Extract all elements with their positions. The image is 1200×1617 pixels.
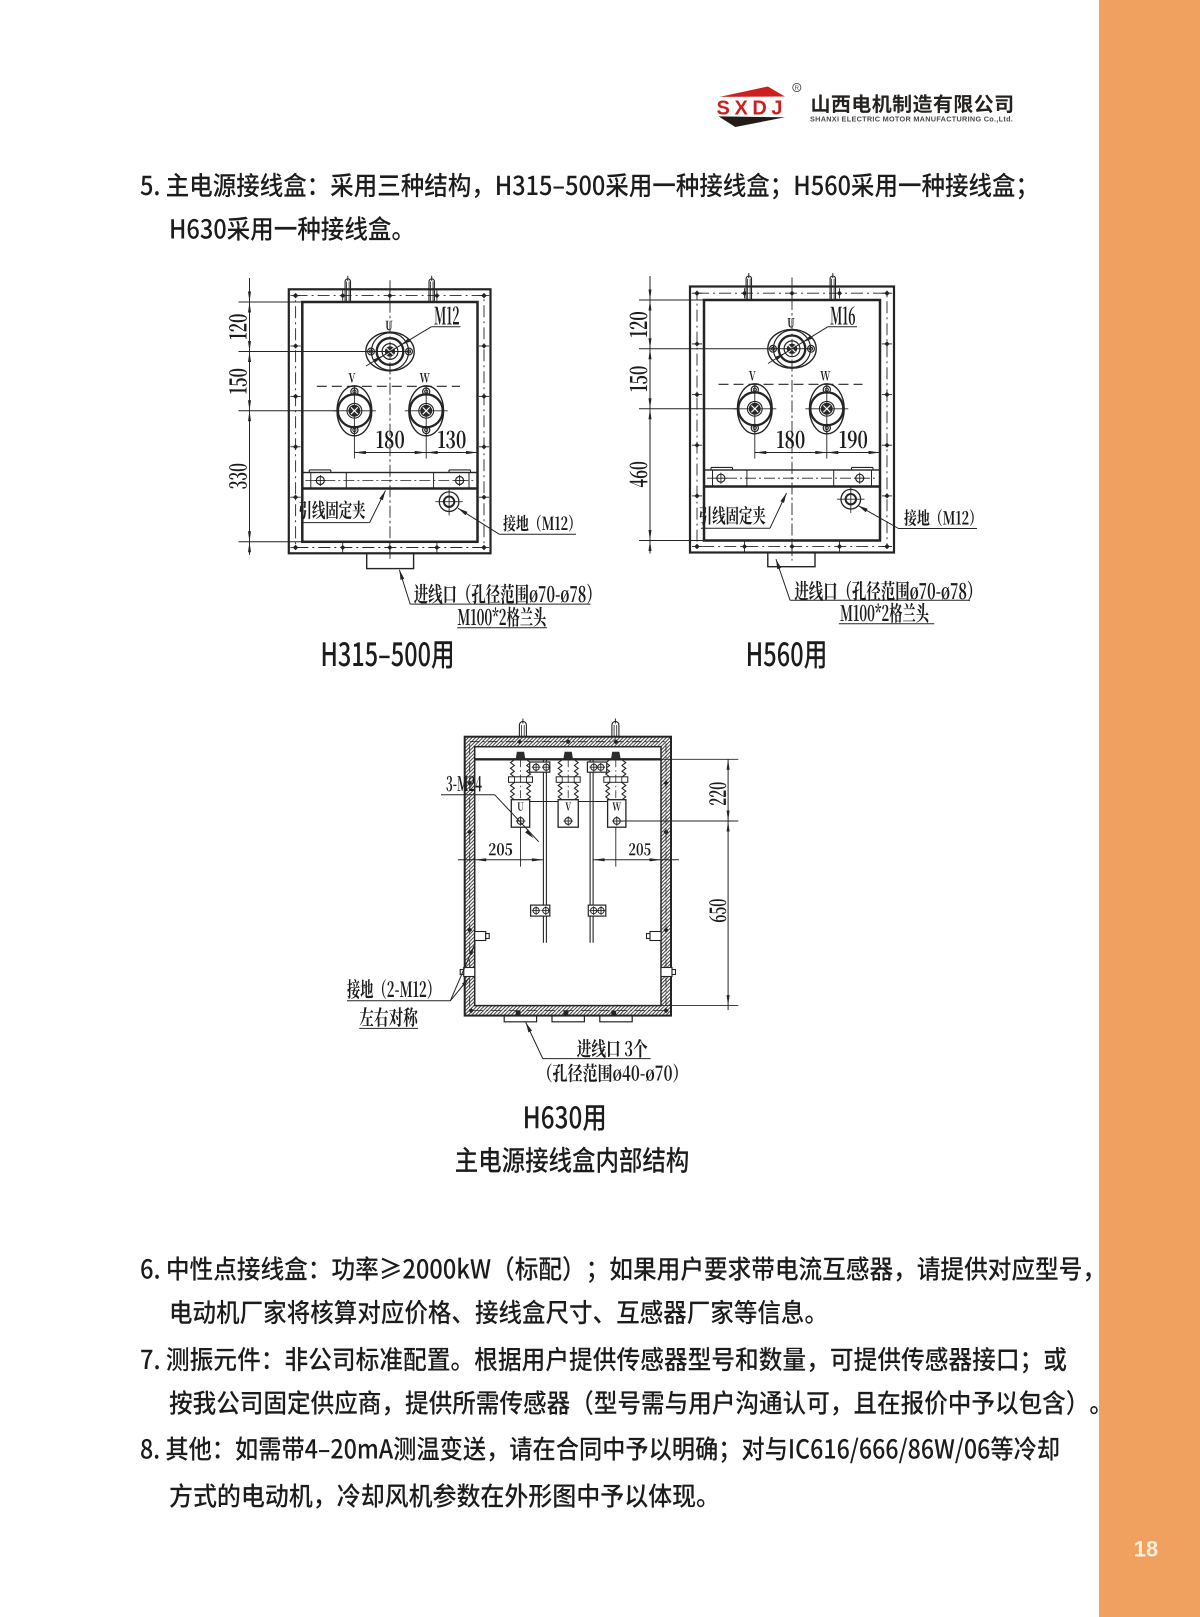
svg-text:18: 18	[1134, 1537, 1158, 1562]
svg-text:SHANXI ELECTRIC MOTOR MANUFACT: SHANXI ELECTRIC MOTOR MANUFACTURING Co.,…	[810, 114, 1013, 123]
svg-text:SXDJ: SXDJ	[717, 97, 788, 119]
svg-text:R: R	[795, 86, 800, 92]
